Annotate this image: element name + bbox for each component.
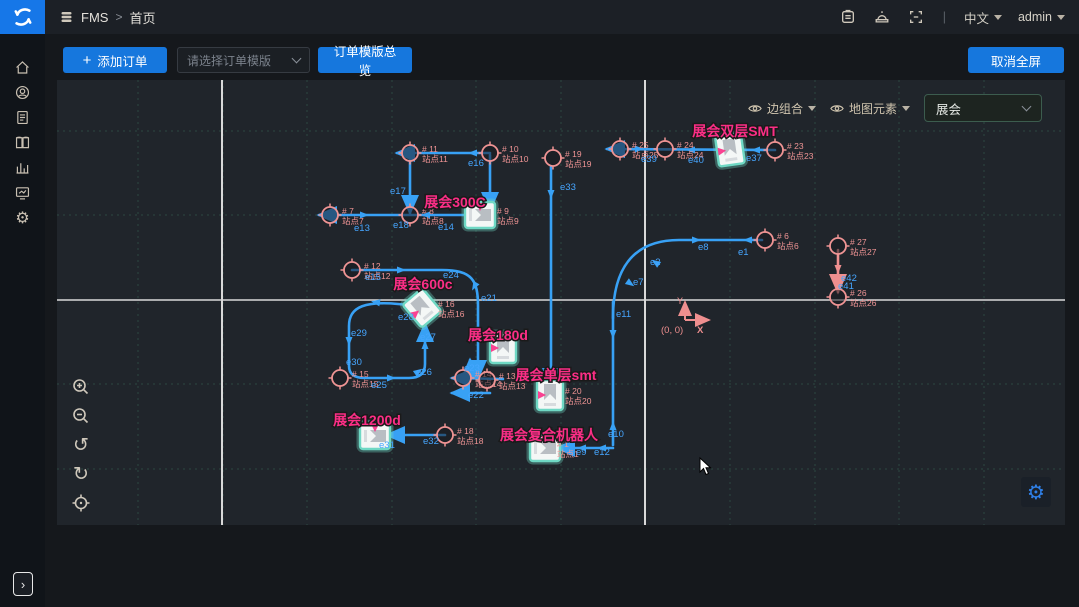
- edge-label: e11: [616, 309, 631, 320]
- station-name: 站点27: [850, 247, 877, 257]
- station-站点23[interactable]: # 23站点23: [764, 139, 814, 162]
- eye-icon: [748, 103, 762, 114]
- station-站点16[interactable]: # 16站点16: [438, 299, 465, 319]
- station-站点27[interactable]: # 27站点27: [827, 235, 877, 258]
- edge-label: e26: [416, 367, 432, 378]
- area-label: 展会双层SMT: [692, 123, 778, 139]
- user-menu[interactable]: admin: [1018, 10, 1065, 24]
- chevron-down-icon: [902, 106, 910, 111]
- add-order-button[interactable]: + 添加订单: [63, 47, 167, 73]
- svg-text:(0, 0): (0, 0): [661, 325, 683, 336]
- edge-label: e27: [420, 332, 436, 343]
- edge-label: e8: [698, 242, 709, 253]
- breadcrumb: FMS > 首页: [59, 8, 155, 27]
- mouse-cursor: [700, 458, 711, 475]
- monitor-icon[interactable]: [0, 180, 45, 204]
- station-tag: # 23: [787, 141, 804, 151]
- station-tag: # 9: [497, 206, 509, 216]
- map-elements-toggle[interactable]: 地图元素: [830, 100, 910, 117]
- station-name: 站点26: [850, 298, 877, 308]
- station-站点20[interactable]: # 20站点20: [565, 386, 592, 406]
- edge-label: e32: [423, 436, 439, 447]
- eye-icon: [830, 103, 844, 114]
- task-icon[interactable]: [839, 8, 857, 26]
- chevron-down-icon: [1022, 102, 1032, 112]
- locate-icon[interactable]: [70, 492, 92, 514]
- edge-label: e7: [633, 277, 644, 288]
- edge-label: e13: [354, 223, 370, 234]
- rotate-cw-icon[interactable]: ↻: [70, 463, 92, 485]
- edge-arrow: [397, 267, 406, 274]
- station-tag: # 20: [565, 386, 582, 396]
- area-label: 展会1200d: [333, 412, 401, 428]
- edge-label: e29: [351, 328, 367, 339]
- station-name: 站点10: [502, 154, 529, 164]
- alarm-icon[interactable]: [873, 8, 891, 26]
- edge-label: e28: [398, 312, 414, 323]
- edge-arrow: [468, 150, 477, 157]
- sidebar-expand-button[interactable]: ›: [13, 572, 33, 596]
- edge-label: e31: [379, 440, 395, 451]
- edge-label: e40: [688, 155, 704, 166]
- sidebar: ⚙ ›: [0, 0, 45, 607]
- cancel-fullscreen-button[interactable]: 取消全屏: [968, 47, 1064, 73]
- map-canvas[interactable]: # 11站点11# 10站点10# 19站点19# 25站点25# 24站点24…: [57, 80, 1065, 525]
- station-tag: # 7: [342, 206, 354, 216]
- template-overview-button[interactable]: 订单模版总览: [318, 47, 412, 73]
- edge-label: e39: [641, 154, 657, 165]
- edge-label: e10: [608, 429, 624, 440]
- chevron-down-icon: [1057, 15, 1065, 20]
- svg-text:X: X: [697, 325, 704, 336]
- fleet-map[interactable]: # 11站点11# 10站点10# 19站点19# 25站点25# 24站点24…: [57, 80, 1065, 525]
- topbar: FMS > 首页 | 中文 admin: [45, 0, 1079, 34]
- robot[interactable]: [535, 378, 565, 412]
- map-origin: Y(0, 0)X: [661, 296, 709, 336]
- station-tag: # 24: [677, 140, 694, 150]
- breadcrumb-separator: >: [115, 10, 122, 24]
- plus-icon: +: [83, 52, 92, 69]
- edge-label: e2: [650, 257, 661, 268]
- stats-icon[interactable]: [0, 155, 45, 179]
- edge-group-toggle[interactable]: 边组合: [748, 100, 816, 117]
- area-label: 展会复合机器人: [500, 427, 599, 443]
- station-tag: # 13: [499, 371, 516, 381]
- station-站点9[interactable]: # 9站点9: [497, 206, 519, 226]
- chevron-down-icon: [292, 54, 302, 64]
- station-name: 站点6: [777, 241, 799, 251]
- area-label: 展会600c: [393, 276, 452, 292]
- station-name: 站点11: [422, 154, 448, 164]
- settings-icon[interactable]: ⚙: [0, 205, 45, 229]
- edge-label: e17: [390, 186, 406, 197]
- station-name: 站点18: [457, 436, 484, 446]
- edge-label: e22: [468, 390, 484, 401]
- edge-arrow: [743, 237, 752, 244]
- order-template-select[interactable]: 请选择订单模版: [177, 47, 310, 73]
- station-tag: # 19: [565, 149, 582, 159]
- station-name: 站点9: [497, 216, 519, 226]
- zoom-in-icon[interactable]: [70, 376, 92, 398]
- edge-label: e9: [576, 447, 587, 458]
- robot-icon[interactable]: [0, 80, 45, 104]
- station-name: 站点16: [438, 309, 465, 319]
- area-label: 展会单层smt: [516, 367, 597, 383]
- chevron-down-icon: [994, 15, 1002, 20]
- map-area-select[interactable]: 展会: [924, 94, 1042, 122]
- chevron-down-icon: [808, 106, 816, 111]
- edge-label: e37: [746, 153, 762, 164]
- app-logo-icon[interactable]: [0, 0, 45, 34]
- edge-label: e21: [481, 293, 497, 304]
- station-name: 站点19: [565, 159, 592, 169]
- fullscreen-icon[interactable]: [907, 8, 925, 26]
- brand-label[interactable]: FMS: [81, 10, 108, 25]
- station-tag: # 16: [438, 299, 455, 309]
- station-tag: # 10: [502, 144, 519, 154]
- map-icon[interactable]: [0, 130, 45, 154]
- edge-label: e33: [560, 182, 576, 193]
- station-tag: # 15: [352, 369, 369, 379]
- language-menu[interactable]: 中文: [964, 8, 1002, 27]
- station-tag: # 12: [364, 261, 381, 271]
- map-settings-gear-icon[interactable]: ⚙: [1021, 477, 1051, 507]
- area-label: 展会300C: [424, 194, 485, 210]
- station-name: 站点20: [565, 396, 592, 406]
- edge-arrow: [610, 330, 617, 339]
- edge-label: e12: [594, 447, 610, 458]
- edge-label: e30: [346, 357, 362, 368]
- svg-text:Y: Y: [677, 296, 683, 306]
- station-站点10[interactable]: # 10站点10: [479, 142, 529, 165]
- rotate-ccw-icon[interactable]: ↺: [70, 434, 92, 456]
- edge-label: e18: [393, 220, 409, 231]
- edge-label: e14: [438, 222, 454, 233]
- station-tag: # 25: [632, 140, 649, 150]
- edge-label: e1: [738, 247, 749, 258]
- divider: |: [941, 10, 948, 24]
- edge-label: e23: [464, 363, 480, 374]
- station-tag: # 11: [422, 144, 438, 154]
- edge-label: e16: [468, 158, 484, 169]
- station-tag: # 18: [457, 426, 474, 436]
- home-icon[interactable]: [0, 55, 45, 79]
- orders-icon[interactable]: [0, 105, 45, 129]
- edge-label: e25: [371, 380, 387, 391]
- page-title: 首页: [129, 8, 155, 27]
- layers-icon: [59, 10, 74, 24]
- zoom-out-icon[interactable]: [70, 405, 92, 427]
- station-name: 站点23: [787, 151, 814, 161]
- station-tag: # 6: [777, 231, 789, 241]
- edge-arrow: [548, 190, 555, 199]
- station-tag: # 27: [850, 237, 867, 247]
- station-站点6[interactable]: # 6站点6: [754, 229, 800, 252]
- area-label: 展会180d: [468, 327, 528, 343]
- edge-label: e41: [838, 281, 854, 292]
- station-站点19[interactable]: # 19站点19: [542, 147, 592, 170]
- edge-label: e15: [365, 272, 381, 283]
